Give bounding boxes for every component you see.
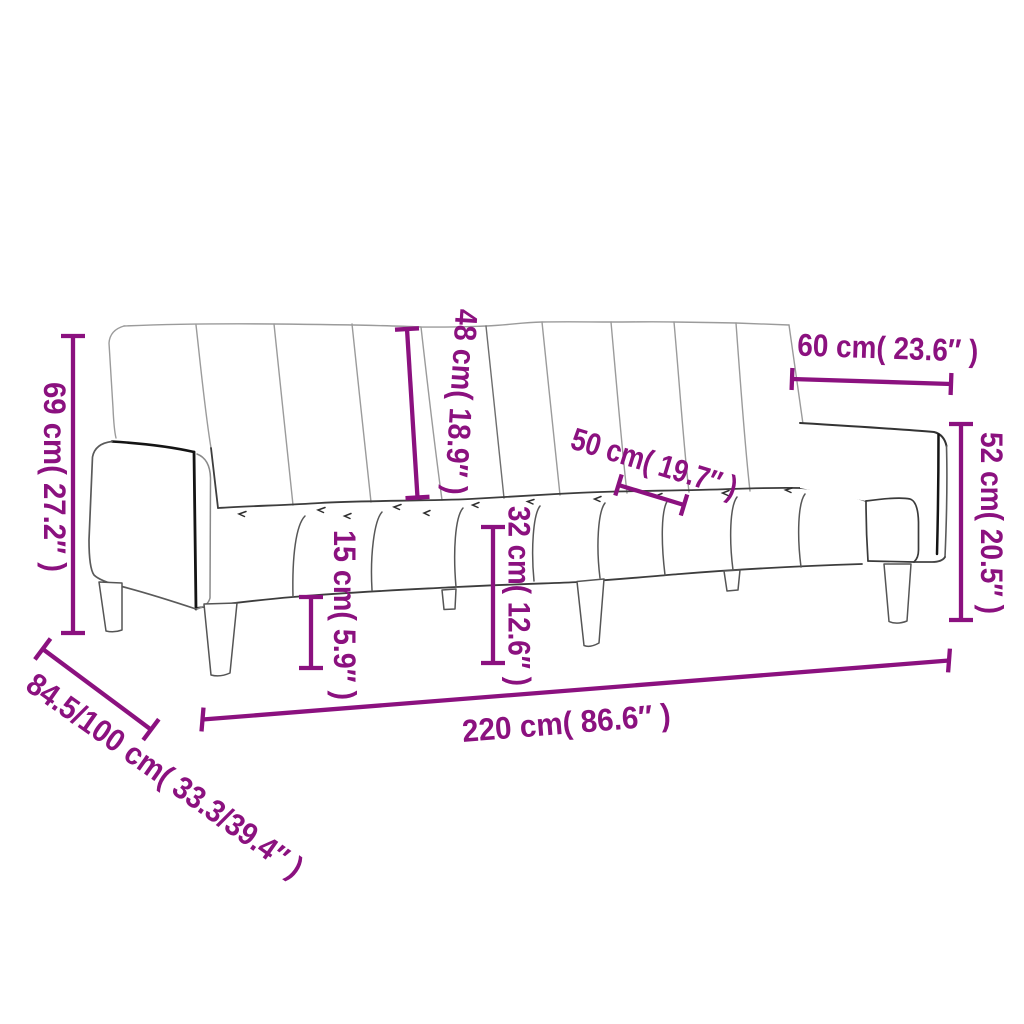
svg-text:52 cm( 20.5″ ): 52 cm( 20.5″ ) — [974, 432, 1010, 614]
svg-text:32 cm( 12.6″ ): 32 cm( 12.6″ ) — [502, 506, 538, 686]
svg-text:60 cm( 23.6″ ): 60 cm( 23.6″ ) — [797, 327, 979, 369]
svg-text:15 cm( 5.9″ ): 15 cm( 5.9″ ) — [327, 530, 363, 700]
svg-text:69 cm( 27.2″ ): 69 cm( 27.2″ ) — [37, 382, 73, 572]
